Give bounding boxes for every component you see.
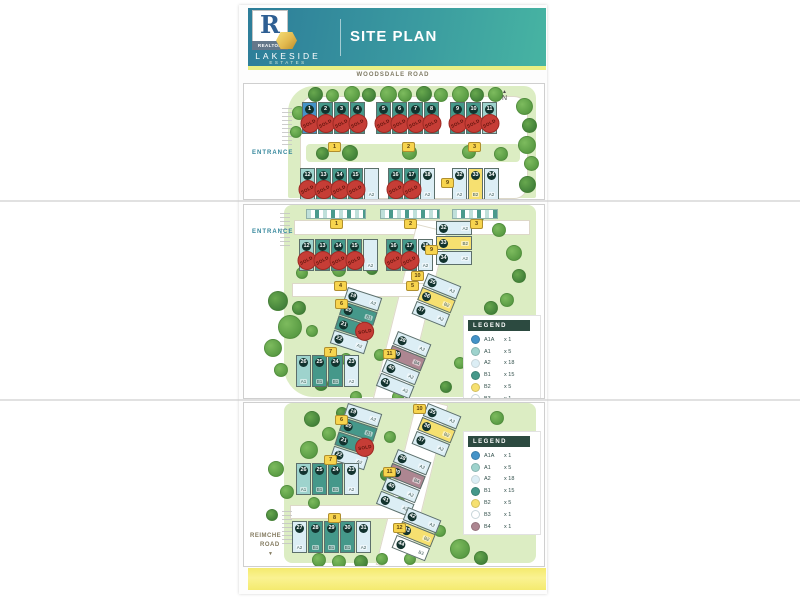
sold-marker: SOLD — [400, 251, 419, 270]
unit-number: 5 — [379, 105, 388, 114]
building-block: 27A228B129B130B131A2 — [292, 521, 371, 553]
unit-type-color-icon — [471, 522, 480, 531]
unit-type-label: A2 — [428, 521, 437, 528]
unit: 15B1SOLD — [348, 168, 363, 200]
entrance-hatch — [282, 511, 292, 547]
unit: 5B1SOLD — [376, 102, 391, 134]
tree-icon — [322, 427, 336, 441]
tree-icon — [518, 136, 536, 154]
tree-icon — [292, 301, 306, 315]
legend-count: x 1 — [504, 512, 511, 518]
unit-number: 33 — [439, 239, 448, 248]
unit-number: 1 — [305, 105, 314, 114]
unit: 16B1SOLD — [388, 168, 403, 200]
building-strip — [380, 209, 440, 219]
sold-marker: SOLD — [402, 180, 421, 199]
tree-icon — [452, 86, 469, 103]
unit-type-label: B1 — [365, 313, 374, 320]
unit-type-label: A2 — [367, 263, 375, 268]
unit: 29B1 — [324, 521, 339, 553]
unit-number: 9 — [453, 105, 462, 114]
sold-marker: SOLD — [345, 251, 364, 270]
block-number-badge: 6 — [335, 299, 348, 309]
unit-type-label: B2 — [472, 192, 480, 197]
unit-type-label: B2 — [422, 535, 431, 542]
unit-type-label: B1 — [316, 487, 324, 492]
legend-code: B2 — [484, 384, 500, 390]
unit: 14B1SOLD — [331, 239, 346, 271]
unit-type-label: B2 — [442, 431, 451, 438]
legend-code: B1 — [484, 372, 500, 378]
block-number-badge: 10 — [411, 271, 424, 281]
legend-code: B3 — [484, 396, 500, 399]
tree-icon — [312, 553, 326, 567]
legend-count: x 5 — [504, 349, 511, 355]
legend-item: B2x 5 — [464, 497, 540, 509]
page-title: SITE PLAN — [350, 28, 437, 45]
tree-icon — [512, 269, 526, 283]
legend-items: A1Ax 1A1x 5A2x 18B1x 15B2x 5B3x 1B4x 1 — [464, 334, 540, 399]
banner-accent-strip — [248, 66, 546, 70]
legend-item: A1x 5 — [464, 462, 540, 474]
tree-icon — [516, 98, 533, 115]
tree-icon — [440, 381, 452, 393]
entrance-label: ENTRANCE — [252, 229, 293, 235]
legend-item: B3x 1 — [464, 393, 540, 399]
sold-marker: SOLD — [422, 114, 441, 133]
panel-canvas-3: LEGEND A1Ax 1A1x 5A2x 18B1x 15B2x 5B3x 1… — [243, 402, 545, 567]
unit-type-label: A2 — [418, 463, 427, 470]
legend-code: A1A — [484, 453, 500, 459]
brand-subname: ESTATES — [248, 60, 328, 65]
unit-type-color-icon — [471, 347, 480, 356]
tree-icon — [384, 431, 396, 443]
tree-icon — [488, 87, 503, 102]
block-number-badge: 10 — [413, 404, 426, 414]
unit: 12A1SOLD — [300, 168, 315, 200]
legend-code: B4 — [484, 524, 500, 530]
unit-number: 38 — [396, 452, 408, 464]
unit-number: 14 — [334, 242, 343, 251]
tree-icon — [266, 509, 278, 521]
tree-icon — [522, 118, 537, 133]
legend-code: A1 — [484, 349, 500, 355]
tree-icon — [268, 461, 284, 477]
unit: 23A2 — [344, 463, 359, 495]
unit-type-label: A2 — [369, 299, 378, 306]
unit-number: 27 — [295, 524, 304, 533]
block-number-badge: 2 — [404, 219, 417, 229]
unit-type-label: A1 — [300, 487, 308, 492]
tree-icon — [274, 363, 288, 377]
unit-number: 12 — [302, 242, 311, 251]
tree-icon — [268, 291, 288, 311]
unit-type-label: A2 — [418, 345, 427, 352]
road-direction-arrow: ▼ — [268, 551, 273, 557]
unit-number: 41 — [380, 376, 392, 388]
unit: 9B1SOLD — [450, 102, 465, 134]
legend-count: x 1 — [504, 524, 511, 530]
tree-icon — [354, 555, 368, 567]
block-number-badge: 7 — [324, 455, 337, 465]
unit-number: 19 — [347, 406, 358, 417]
unit-number: 21 — [338, 319, 349, 330]
unit-number: 37 — [415, 304, 427, 316]
unit-type-label: A2 — [448, 417, 457, 424]
unit-type-label: A1 — [300, 379, 308, 384]
tree-icon — [344, 86, 360, 102]
block-number-badge: 3 — [468, 142, 481, 152]
block-number-badge: 12 — [393, 523, 406, 533]
legend-count: x 15 — [504, 488, 514, 494]
unit: 1A1ASOLD — [302, 102, 317, 134]
unit-number: 14 — [335, 171, 344, 180]
unit-number: 16 — [391, 171, 400, 180]
unit-number: 26 — [299, 466, 308, 475]
unit-number: 19 — [347, 290, 358, 301]
unit-number: 34 — [439, 254, 448, 263]
unit-type-label: B2 — [442, 301, 451, 308]
unit-type-color-icon — [471, 335, 480, 344]
header-divider — [340, 19, 341, 56]
unit-type-label: A2 — [424, 192, 432, 197]
legend-item: B3x 1 — [464, 509, 540, 521]
unit-number: 37 — [415, 434, 427, 446]
legend-item: A1Ax 1 — [464, 334, 540, 346]
tree-icon — [376, 553, 388, 565]
unit-number: 30 — [343, 524, 352, 533]
building-strip — [306, 209, 366, 219]
unit-type-color-icon — [471, 383, 480, 392]
unit-number: 10 — [469, 105, 478, 114]
unit-type-label: A2 — [461, 256, 469, 261]
unit: 24B1 — [328, 463, 343, 495]
tree-icon — [484, 301, 498, 315]
legend-title: LEGEND — [468, 320, 530, 331]
block-number-badge: 1 — [328, 142, 341, 152]
unit-number: 25 — [315, 358, 324, 367]
tree-icon — [494, 147, 508, 161]
unit-number: 15 — [351, 171, 360, 180]
unit: 33B2 — [468, 168, 483, 200]
building-block: 1A1ASOLD2B1SOLD3B1SOLD4B1SOLD — [302, 102, 365, 134]
unit-number: 12 — [303, 171, 312, 180]
unit-type-label: B1 — [328, 545, 336, 550]
unit: 4B1SOLD — [350, 102, 365, 134]
unit-type-label: A2 — [437, 315, 446, 322]
unit: A2 — [364, 168, 379, 200]
unit-type-label: A2 — [368, 192, 376, 197]
tree-icon — [332, 555, 346, 567]
tree-icon — [416, 86, 432, 102]
unit: 3B1SOLD — [334, 102, 349, 134]
unit: 17B1SOLD — [404, 168, 419, 200]
legend-code: B2 — [484, 500, 500, 506]
block-number-badge: 9 — [425, 245, 438, 255]
tree-icon — [304, 411, 320, 427]
unit-number: 6 — [395, 105, 404, 114]
tree-icon — [342, 145, 358, 161]
unit-number: 21 — [338, 435, 349, 446]
unit-number: 24 — [331, 358, 340, 367]
legend-title: LEGEND — [468, 436, 530, 447]
unit-type-label: A2 — [407, 491, 416, 498]
unit: 25B1 — [312, 463, 327, 495]
unit-type-label: B1 — [316, 379, 324, 384]
building-block: 5B1SOLD6B1SOLD7B1SOLD8B1SOLD — [376, 102, 439, 134]
block-number-badge: 9 — [441, 178, 454, 188]
block-number-badge: 5 — [406, 281, 419, 291]
header-banner: R REALTOR LAKESIDE ESTATES SITE PLAN — [248, 8, 546, 66]
tree-icon — [308, 87, 323, 102]
unit-number: 41 — [380, 494, 392, 506]
unit-type-label: A2 — [348, 487, 356, 492]
unit-number: 23 — [347, 466, 356, 475]
unit-number: 13 — [319, 171, 328, 180]
unit-number: 24 — [331, 466, 340, 475]
unit-number: 35 — [426, 406, 438, 418]
document-scan: R REALTOR LAKESIDE ESTATES SITE PLAN WOO… — [0, 0, 800, 600]
unit-type-label: B2 — [461, 241, 469, 246]
unit: 30B1 — [340, 521, 355, 553]
unit-type-label: A2 — [488, 192, 496, 197]
unit-number: 34 — [487, 171, 496, 180]
unit: 34A2 — [484, 168, 499, 200]
unit: 12A1SOLD — [299, 239, 314, 271]
unit: 28B1 — [308, 521, 323, 553]
block-number-badge: 1 — [330, 219, 343, 229]
building-block: 12A1SOLD13B1SOLD14B1SOLD15B1SOLDA2 — [299, 239, 378, 271]
unit: 7B1SOLD — [408, 102, 423, 134]
legend-item: B1x 15 — [464, 369, 540, 381]
tree-icon — [398, 88, 412, 102]
unit-type-label: A2 — [355, 342, 364, 349]
legend-count: x 18 — [504, 360, 514, 366]
unit-number: 17 — [407, 171, 416, 180]
unit-number: 26 — [299, 358, 308, 367]
tree-icon — [264, 339, 282, 357]
unit-number: 23 — [347, 358, 356, 367]
reimche-road-label: ROAD — [260, 542, 280, 548]
tree-icon — [450, 539, 470, 559]
tree-icon — [362, 88, 376, 102]
tree-icon — [308, 497, 320, 509]
unit-type-label: A2 — [422, 263, 430, 268]
legend-code: A2 — [484, 360, 500, 366]
unit-type-label: B1 — [344, 545, 352, 550]
legend-item: A2x 18 — [464, 474, 540, 486]
unit: 17B1SOLD — [402, 239, 417, 271]
unit-type-color-icon — [471, 463, 480, 472]
unit-type-color-icon — [471, 487, 480, 496]
unit: 11A1SOLD — [482, 102, 497, 134]
block-number-badge: 6 — [335, 415, 348, 425]
unit-number: 44 — [395, 538, 407, 550]
unit-number: 2 — [321, 105, 330, 114]
legend-count: x 18 — [504, 476, 514, 482]
unit-type-label: A2 — [401, 386, 410, 393]
tree-icon — [380, 86, 397, 103]
legend-code: B3 — [484, 512, 500, 518]
legend-count: x 15 — [504, 372, 514, 378]
unit-type-label: A2 — [407, 373, 416, 380]
legend-item: A1Ax 1 — [464, 450, 540, 462]
legend-item: B2x 5 — [464, 381, 540, 393]
unit-type-label: B1 — [332, 487, 340, 492]
legend-box: LEGEND A1Ax 1A1x 5A2x 18B1x 15B2x 5B3x 1… — [463, 315, 541, 399]
block-number-badge: 11 — [383, 349, 396, 359]
legend-item: B1x 15 — [464, 485, 540, 497]
unit-type-label: A2 — [437, 445, 446, 452]
unit-type-label: A2 — [448, 287, 457, 294]
unit-number: 15 — [350, 242, 359, 251]
unit-number: 38 — [396, 334, 408, 346]
unit: 32A2 — [436, 221, 472, 235]
unit-number: 35 — [426, 276, 438, 288]
unit-number: 32 — [455, 171, 464, 180]
unit-type-label: A2 — [348, 379, 356, 384]
unit: 18A2 — [420, 168, 435, 200]
legend-item: A2x 18 — [464, 358, 540, 370]
building-block: 32A233B234A2 — [452, 168, 499, 200]
unit-type-label: A2 — [296, 545, 304, 550]
unit-type-label: B1 — [365, 429, 374, 436]
block-number-badge: 3 — [470, 219, 483, 229]
unit: 32A2 — [452, 168, 467, 200]
unit: 27A2 — [292, 521, 307, 553]
unit: 33B2 — [436, 236, 472, 250]
legend-code: B1 — [484, 488, 500, 494]
tree-icon — [519, 176, 536, 193]
tree-icon — [506, 245, 522, 261]
unit-type-label: A2 — [461, 226, 469, 231]
tree-icon — [524, 156, 539, 171]
panel-canvas-2: LEGEND A1Ax 1A1x 5A2x 18B1x 15B2x 5B3x 1… — [243, 204, 545, 399]
tree-icon — [434, 88, 448, 102]
unit: 2B1SOLD — [318, 102, 333, 134]
tree-icon — [470, 88, 484, 102]
building-block: 32A233B234A2 — [436, 221, 472, 265]
unit: 24B1 — [328, 355, 343, 387]
north-compass: ▲N — [502, 90, 507, 103]
unit-type-color-icon — [471, 359, 480, 368]
panel-canvas-1: 1A1ASOLD2B1SOLD3B1SOLD4B1SOLD15B1SOLD6B1… — [243, 83, 545, 200]
building-block: 26A125B124B123A2 — [296, 463, 359, 495]
unit-type-color-icon — [471, 475, 480, 484]
legend-count: x 1 — [504, 396, 511, 399]
tree-icon — [490, 411, 504, 425]
reimche-road-label: REIMCHE — [250, 533, 281, 539]
unit-number: 7 — [411, 105, 420, 114]
unit-number: 3 — [337, 105, 346, 114]
unit-number: 32 — [439, 224, 448, 233]
legend-item: A1x 5 — [464, 346, 540, 358]
unit-number: 40 — [385, 362, 397, 374]
unit-number: 22 — [333, 333, 344, 344]
sold-marker: SOLD — [348, 114, 367, 133]
scan-divider — [0, 200, 800, 202]
scan-divider — [0, 399, 800, 401]
tree-icon — [350, 391, 362, 399]
unit-type-label: A2 — [456, 192, 464, 197]
unit: 13B1SOLD — [316, 168, 331, 200]
unit-number: 11 — [485, 105, 494, 114]
legend-box: LEGEND A1Ax 1A1x 5A2x 18B1x 15B2x 5B3x 1… — [463, 431, 541, 535]
unit: 26A1 — [296, 355, 311, 387]
unit: 25B1 — [312, 355, 327, 387]
bottom-road-band — [248, 568, 546, 590]
tree-icon — [306, 325, 318, 337]
unit-number: 8 — [427, 105, 436, 114]
unit: 18A2 — [418, 239, 433, 271]
unit-number: 36 — [421, 290, 433, 302]
entrance-label: ENTRANCE — [252, 150, 293, 156]
unit-type-label: B1 — [332, 379, 340, 384]
unit: 6B1SOLD — [392, 102, 407, 134]
unit: 26A1 — [296, 463, 311, 495]
unit-type-color-icon — [471, 451, 480, 460]
unit-number: 31 — [359, 524, 368, 533]
building-block: 12A1SOLD13B1SOLD14B1SOLD15B1SOLDA2 — [300, 168, 379, 200]
unit: 16B1SOLD — [386, 239, 401, 271]
legend-items: A1Ax 1A1x 5A2x 18B1x 15B2x 5B3x 1B4x 1 — [464, 450, 540, 532]
unit-number: 4 — [353, 105, 362, 114]
unit-number: 36 — [421, 420, 433, 432]
unit-number: 29 — [327, 524, 336, 533]
unit: 14B1SOLD — [332, 168, 347, 200]
unit-number: 40 — [385, 480, 397, 492]
unit-number: 18 — [423, 171, 432, 180]
unit-type-label: B3 — [417, 549, 426, 556]
unit-number: 25 — [315, 466, 324, 475]
tree-icon — [500, 293, 514, 307]
block-number-badge: 7 — [324, 347, 337, 357]
unit-type-color-icon — [471, 371, 480, 380]
tree-icon — [278, 315, 302, 339]
tree-icon — [474, 551, 488, 565]
unit-number: 33 — [471, 171, 480, 180]
unit-number: 28 — [311, 524, 320, 533]
block-number-badge: 4 — [334, 281, 347, 291]
unit: 8B1SOLD — [424, 102, 439, 134]
block-number-badge: 8 — [328, 513, 341, 523]
unit-number: 16 — [389, 242, 398, 251]
legend-item: B4x 1 — [464, 521, 540, 533]
tree-icon — [280, 485, 294, 499]
unit-number: 42 — [406, 510, 418, 522]
unit-type-color-icon — [471, 394, 480, 399]
unit-type-label: B1 — [312, 545, 320, 550]
legend-count: x 1 — [504, 453, 511, 459]
building-block: 26A125B124B123A2 — [296, 355, 359, 387]
block-number-badge: 2 — [402, 142, 415, 152]
building-strip — [452, 209, 498, 219]
unit-type-label: A2 — [369, 415, 378, 422]
legend-count: x 5 — [504, 500, 511, 506]
unit-number: 17 — [405, 242, 414, 251]
unit-number: 13 — [318, 242, 327, 251]
legend-code: A1 — [484, 465, 500, 471]
legend-code: A1A — [484, 337, 500, 343]
unit: 13B1SOLD — [315, 239, 330, 271]
unit: 23A2 — [344, 355, 359, 387]
sold-marker: SOLD — [346, 180, 365, 199]
building-block: 16B1SOLD17B1SOLD18A2 — [388, 168, 435, 200]
unit: 31A2 — [356, 521, 371, 553]
legend-count: x 5 — [504, 465, 511, 471]
woodsdale-road-label: WOODSDALE ROAD — [243, 72, 543, 78]
unit: 10B1SOLD — [466, 102, 481, 134]
